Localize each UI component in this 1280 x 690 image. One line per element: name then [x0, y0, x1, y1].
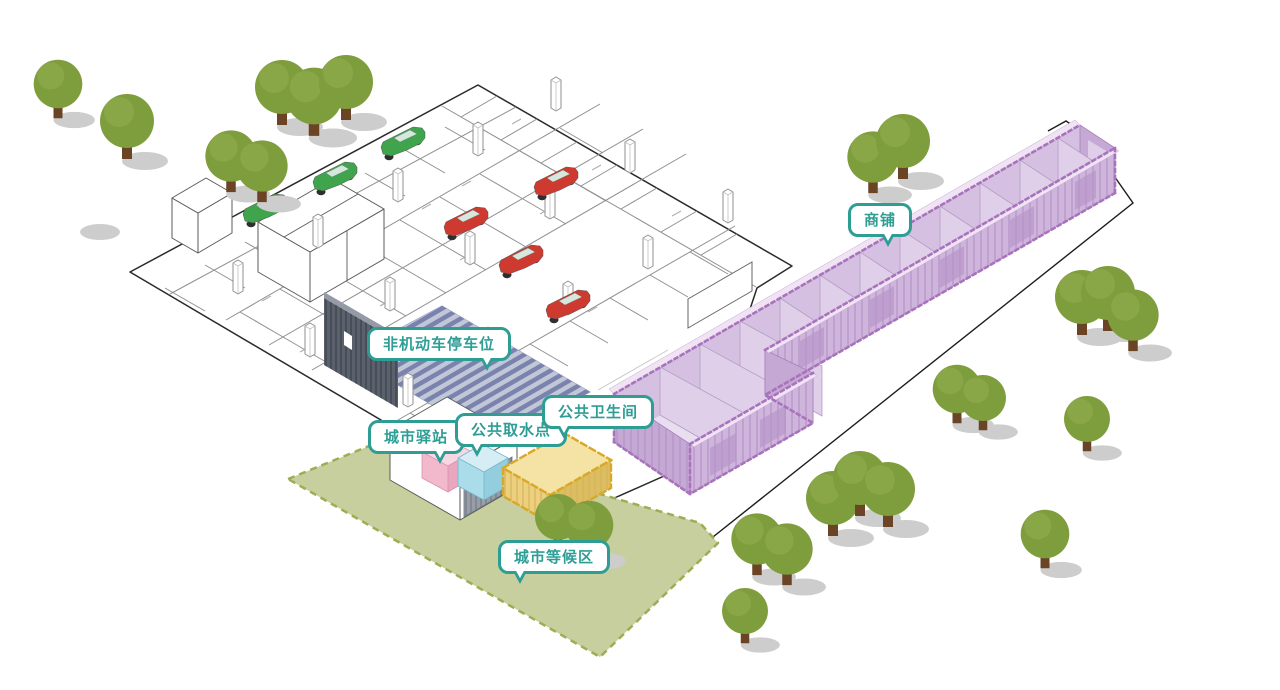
tree-icon [1064, 396, 1122, 461]
column-icon [393, 168, 403, 202]
label-public-toilet: 公共卫生间 [542, 395, 654, 429]
tree-icon [34, 60, 95, 128]
column-icon [385, 277, 395, 311]
tree-icon [861, 462, 929, 538]
label-waiting-area: 城市等候区 [498, 540, 610, 574]
column-icon [305, 323, 315, 357]
label-bike-parking: 非机动车停车位 [367, 327, 511, 361]
tree-icon [1021, 510, 1082, 578]
column-icon [473, 122, 483, 156]
label-shops: 商铺 [848, 203, 912, 237]
column-icon [313, 214, 323, 248]
tree-icon [1107, 289, 1172, 361]
tree-icon [100, 94, 168, 170]
column-icon [233, 260, 243, 294]
column-icon [625, 139, 635, 173]
column-icon [465, 231, 475, 265]
label-city-station: 城市驿站 [368, 420, 464, 454]
axonometric-site-diagram: 商铺 非机动车停车位 城市驿站 公共取水点 公共卫生间 城市等候区 [0, 0, 1280, 690]
tree-shadow [80, 224, 120, 240]
column-icon [643, 235, 653, 269]
tree-icon [722, 588, 780, 653]
column-icon [403, 373, 413, 407]
column-icon [723, 189, 733, 223]
column-icon [551, 77, 561, 111]
site-plan-svg [0, 0, 1280, 690]
